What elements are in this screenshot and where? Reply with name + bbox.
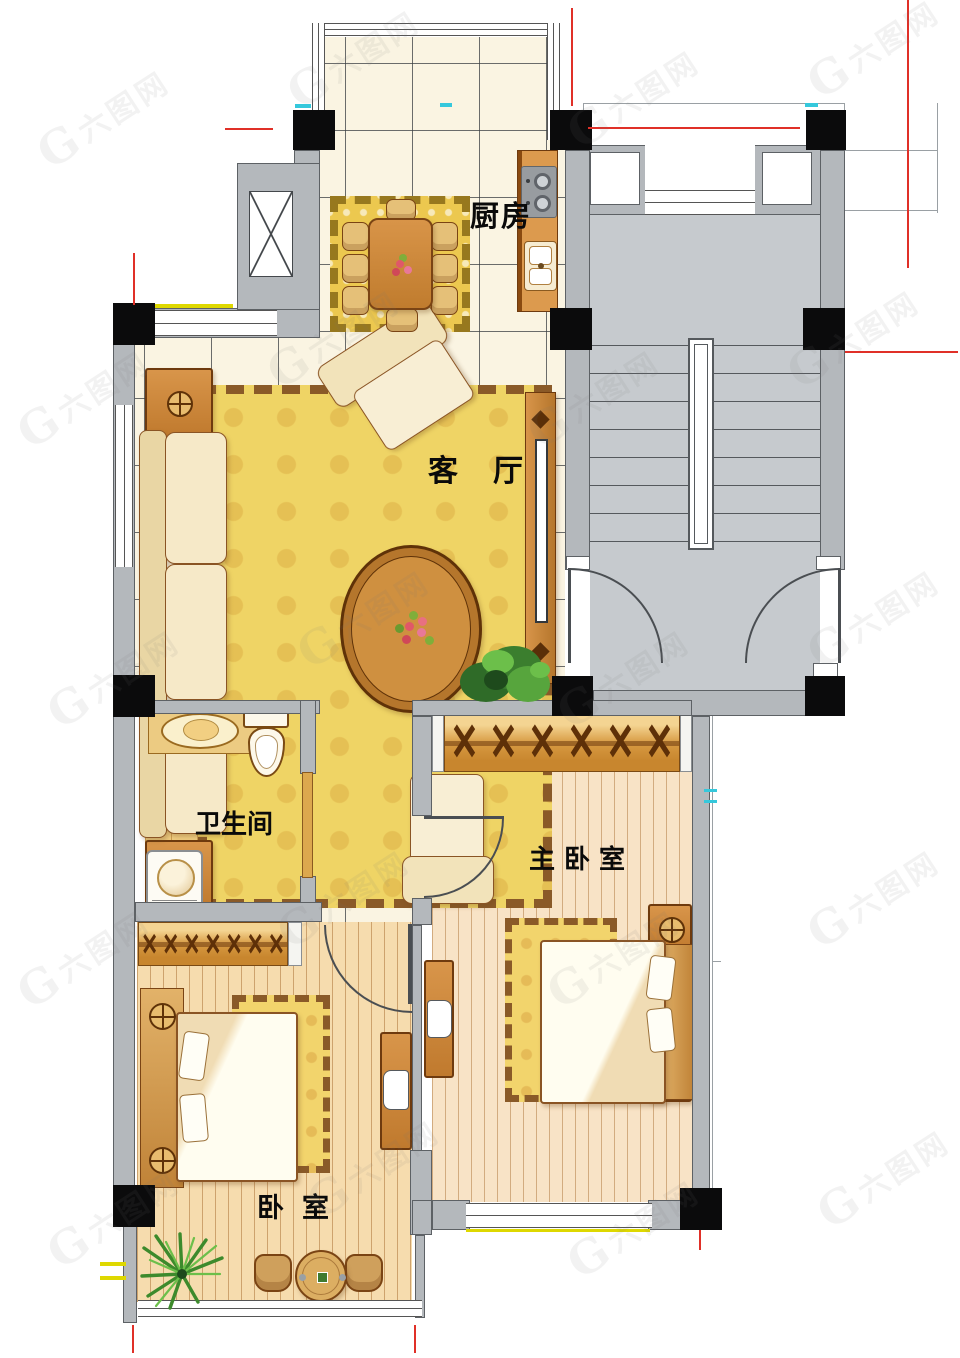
dining-chair	[431, 254, 458, 283]
wall-bedroom-top	[135, 902, 322, 922]
dimension-line	[699, 1230, 701, 1250]
axis-mark	[805, 103, 818, 107]
dimension-line	[225, 128, 273, 130]
sill-mark	[100, 1276, 126, 1280]
column	[113, 303, 155, 345]
stair-bay-recess	[645, 145, 755, 190]
window-master-bottom	[466, 1203, 652, 1228]
stair-window	[762, 152, 812, 205]
stair-flight-right	[714, 345, 820, 548]
pillow	[645, 955, 676, 1002]
bathroom-door	[302, 772, 313, 878]
stair-flight-left	[590, 345, 688, 548]
balcony-chair	[254, 1254, 292, 1292]
potted-plant	[452, 632, 556, 710]
window-living-top	[155, 310, 277, 336]
dining-chair	[342, 286, 369, 315]
axis-mark	[440, 103, 452, 107]
dimension-line	[571, 8, 573, 106]
room-label-bedroom: 卧室	[257, 1186, 347, 1225]
dimension-line	[588, 127, 800, 129]
toilet	[243, 705, 291, 779]
room-label-living: 客厅	[428, 446, 558, 490]
wall-master-bottom	[648, 1200, 684, 1230]
wardrobe-end	[432, 714, 444, 772]
stair-bay-window	[645, 190, 755, 215]
column	[805, 676, 845, 716]
pillow	[179, 1093, 209, 1143]
desk-chair	[383, 1070, 409, 1110]
stair-railing	[688, 338, 714, 550]
bedroom-door	[408, 924, 412, 1004]
wall-master-bottom	[432, 1200, 470, 1230]
column	[113, 675, 155, 717]
wall-corner	[412, 1200, 432, 1235]
flower-centerpiece	[396, 260, 404, 268]
kitchen-sink	[524, 241, 557, 291]
bay-window-top	[312, 23, 560, 36]
neighbor-unit-outline	[937, 103, 938, 213]
floor-bay-window	[325, 37, 547, 140]
wall-master-left	[412, 898, 432, 925]
sill-mark	[155, 304, 233, 308]
column	[803, 308, 845, 350]
wall-bathroom-top	[135, 700, 320, 714]
master-wardrobe: ✕✕✕ ✕✕✕	[444, 714, 680, 772]
desk-chair	[427, 1000, 452, 1038]
sofa	[139, 428, 229, 840]
dining-chair	[386, 308, 418, 332]
dining-chair	[342, 222, 369, 251]
column	[550, 308, 592, 350]
flower-bouquet	[405, 622, 414, 631]
neighbor-unit-outline	[712, 716, 713, 1190]
wall-bathroom-right	[300, 700, 316, 774]
wall-stair-left	[565, 150, 590, 570]
entry-door	[568, 568, 571, 663]
sill-mark	[466, 1229, 650, 1232]
pillow	[646, 1007, 676, 1053]
dining-chair	[342, 254, 369, 283]
master-door	[424, 816, 504, 819]
dimension-line	[132, 1325, 134, 1353]
dining-table	[368, 218, 433, 310]
dining-chair	[431, 286, 458, 315]
balcony-chair	[345, 1254, 383, 1292]
column	[550, 110, 592, 150]
dimension-line	[133, 253, 135, 305]
wardrobe-end	[680, 714, 692, 772]
door-frame	[813, 663, 838, 677]
neighbor-sill-line	[845, 210, 938, 211]
balcony-table	[295, 1250, 347, 1302]
floor-plan: ✕✕✕ ✕✕✕ ✕✕✕ ✕✕✕✕	[0, 0, 960, 1358]
neighbor-door	[838, 568, 841, 663]
wall-master-left	[412, 716, 432, 816]
axis-mark	[295, 104, 311, 108]
dimension-line	[845, 351, 958, 353]
column	[293, 110, 335, 150]
room-label-bathroom: 卫生间	[195, 804, 273, 841]
shaft-flue	[249, 191, 293, 277]
axis-mark	[704, 789, 717, 792]
duct-shaft	[237, 163, 320, 310]
palm-plant	[136, 1230, 228, 1312]
cabinet-ornament	[531, 410, 549, 428]
neighbor-unit-outline	[712, 961, 721, 962]
dining-chair	[431, 222, 458, 251]
sill-mark	[100, 1262, 126, 1266]
column	[680, 1188, 722, 1230]
stair-window	[590, 152, 640, 205]
bedroom-wardrobe: ✕✕✕ ✕✕✕✕	[138, 922, 288, 966]
wardrobe-end	[288, 922, 302, 966]
dimension-line	[414, 1325, 416, 1353]
room-label-kitchen: 厨房	[470, 193, 532, 235]
dimension-line	[907, 0, 909, 268]
window-living-left	[115, 405, 133, 567]
column	[113, 1185, 155, 1227]
column	[806, 110, 846, 150]
neighbor-sill-line	[845, 150, 938, 151]
axis-mark	[704, 800, 717, 803]
room-label-master: 主卧室	[529, 839, 634, 876]
wall-stair-right	[820, 150, 845, 570]
column	[552, 676, 593, 716]
